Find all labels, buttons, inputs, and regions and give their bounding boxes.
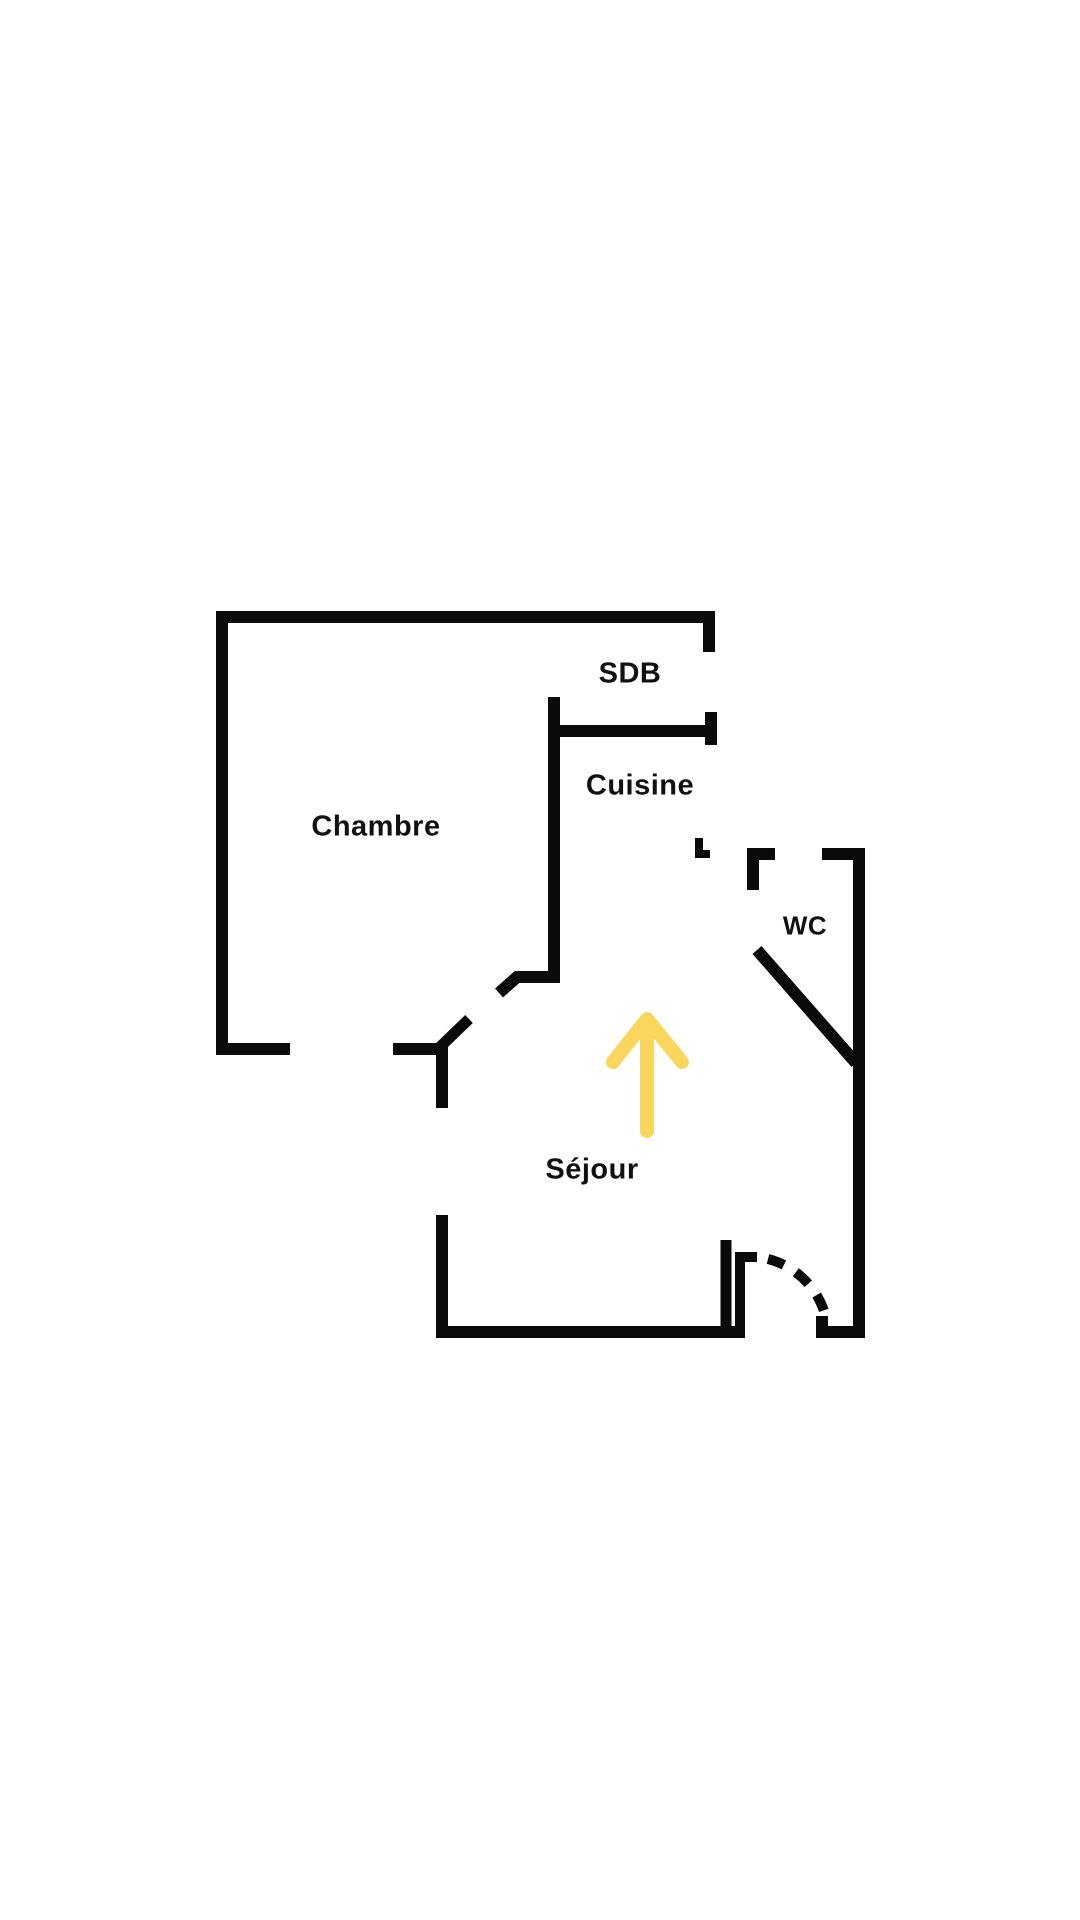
up-arrow-icon	[613, 1019, 682, 1131]
room-label-cuisine: Cuisine	[586, 770, 694, 803]
entry-door-jamb	[740, 1257, 757, 1332]
room-label-chambre: Chambre	[311, 811, 440, 844]
hallway-door-jamb-left	[440, 1019, 469, 1047]
room-label-wc: WC	[783, 911, 827, 942]
floor-plan: Chambre SDB Cuisine WC Séjour	[0, 0, 1080, 1920]
cuisine-wall	[499, 697, 554, 993]
cuisine-wall-end-mark	[699, 838, 710, 854]
sejour-left-bottom-wall	[442, 1215, 745, 1332]
wc-entry-jamb	[753, 854, 775, 890]
entry-door-swing-arc	[768, 1259, 824, 1311]
chambre-bottom-wall	[393, 1049, 442, 1108]
room-label-sejour: Séjour	[545, 1154, 638, 1187]
wc-door-leaf	[757, 950, 856, 1063]
right-exterior-wall	[822, 854, 859, 1332]
room-label-sdb: SDB	[599, 658, 662, 691]
floor-plan-walls	[0, 0, 1080, 1920]
